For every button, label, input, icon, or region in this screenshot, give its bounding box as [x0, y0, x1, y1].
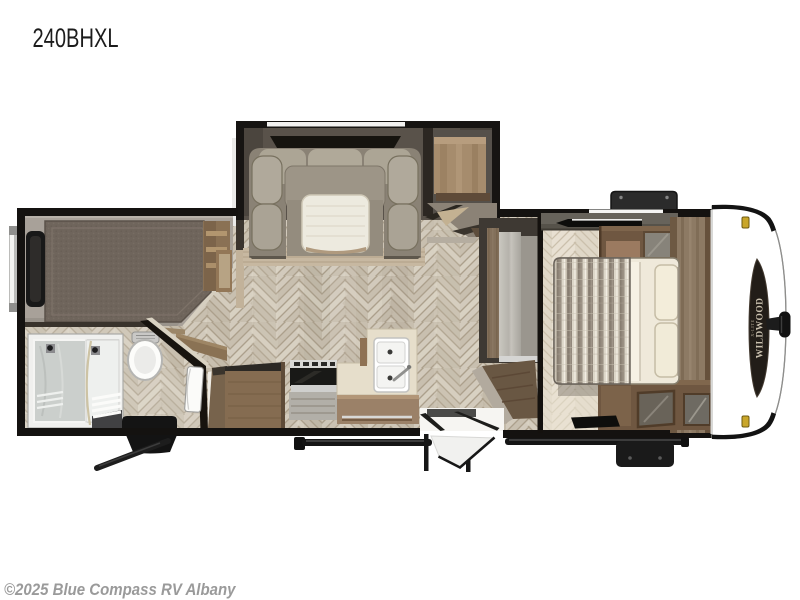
svg-text:240BHXL: 240BHXL [33, 23, 119, 54]
svg-text:WILDWOOD: WILDWOOD [756, 298, 766, 359]
svg-text:©2025 Blue Compass RV Albany: ©2025 Blue Compass RV Albany [4, 581, 237, 599]
svg-text:X-LITE: X-LITE [750, 319, 755, 337]
